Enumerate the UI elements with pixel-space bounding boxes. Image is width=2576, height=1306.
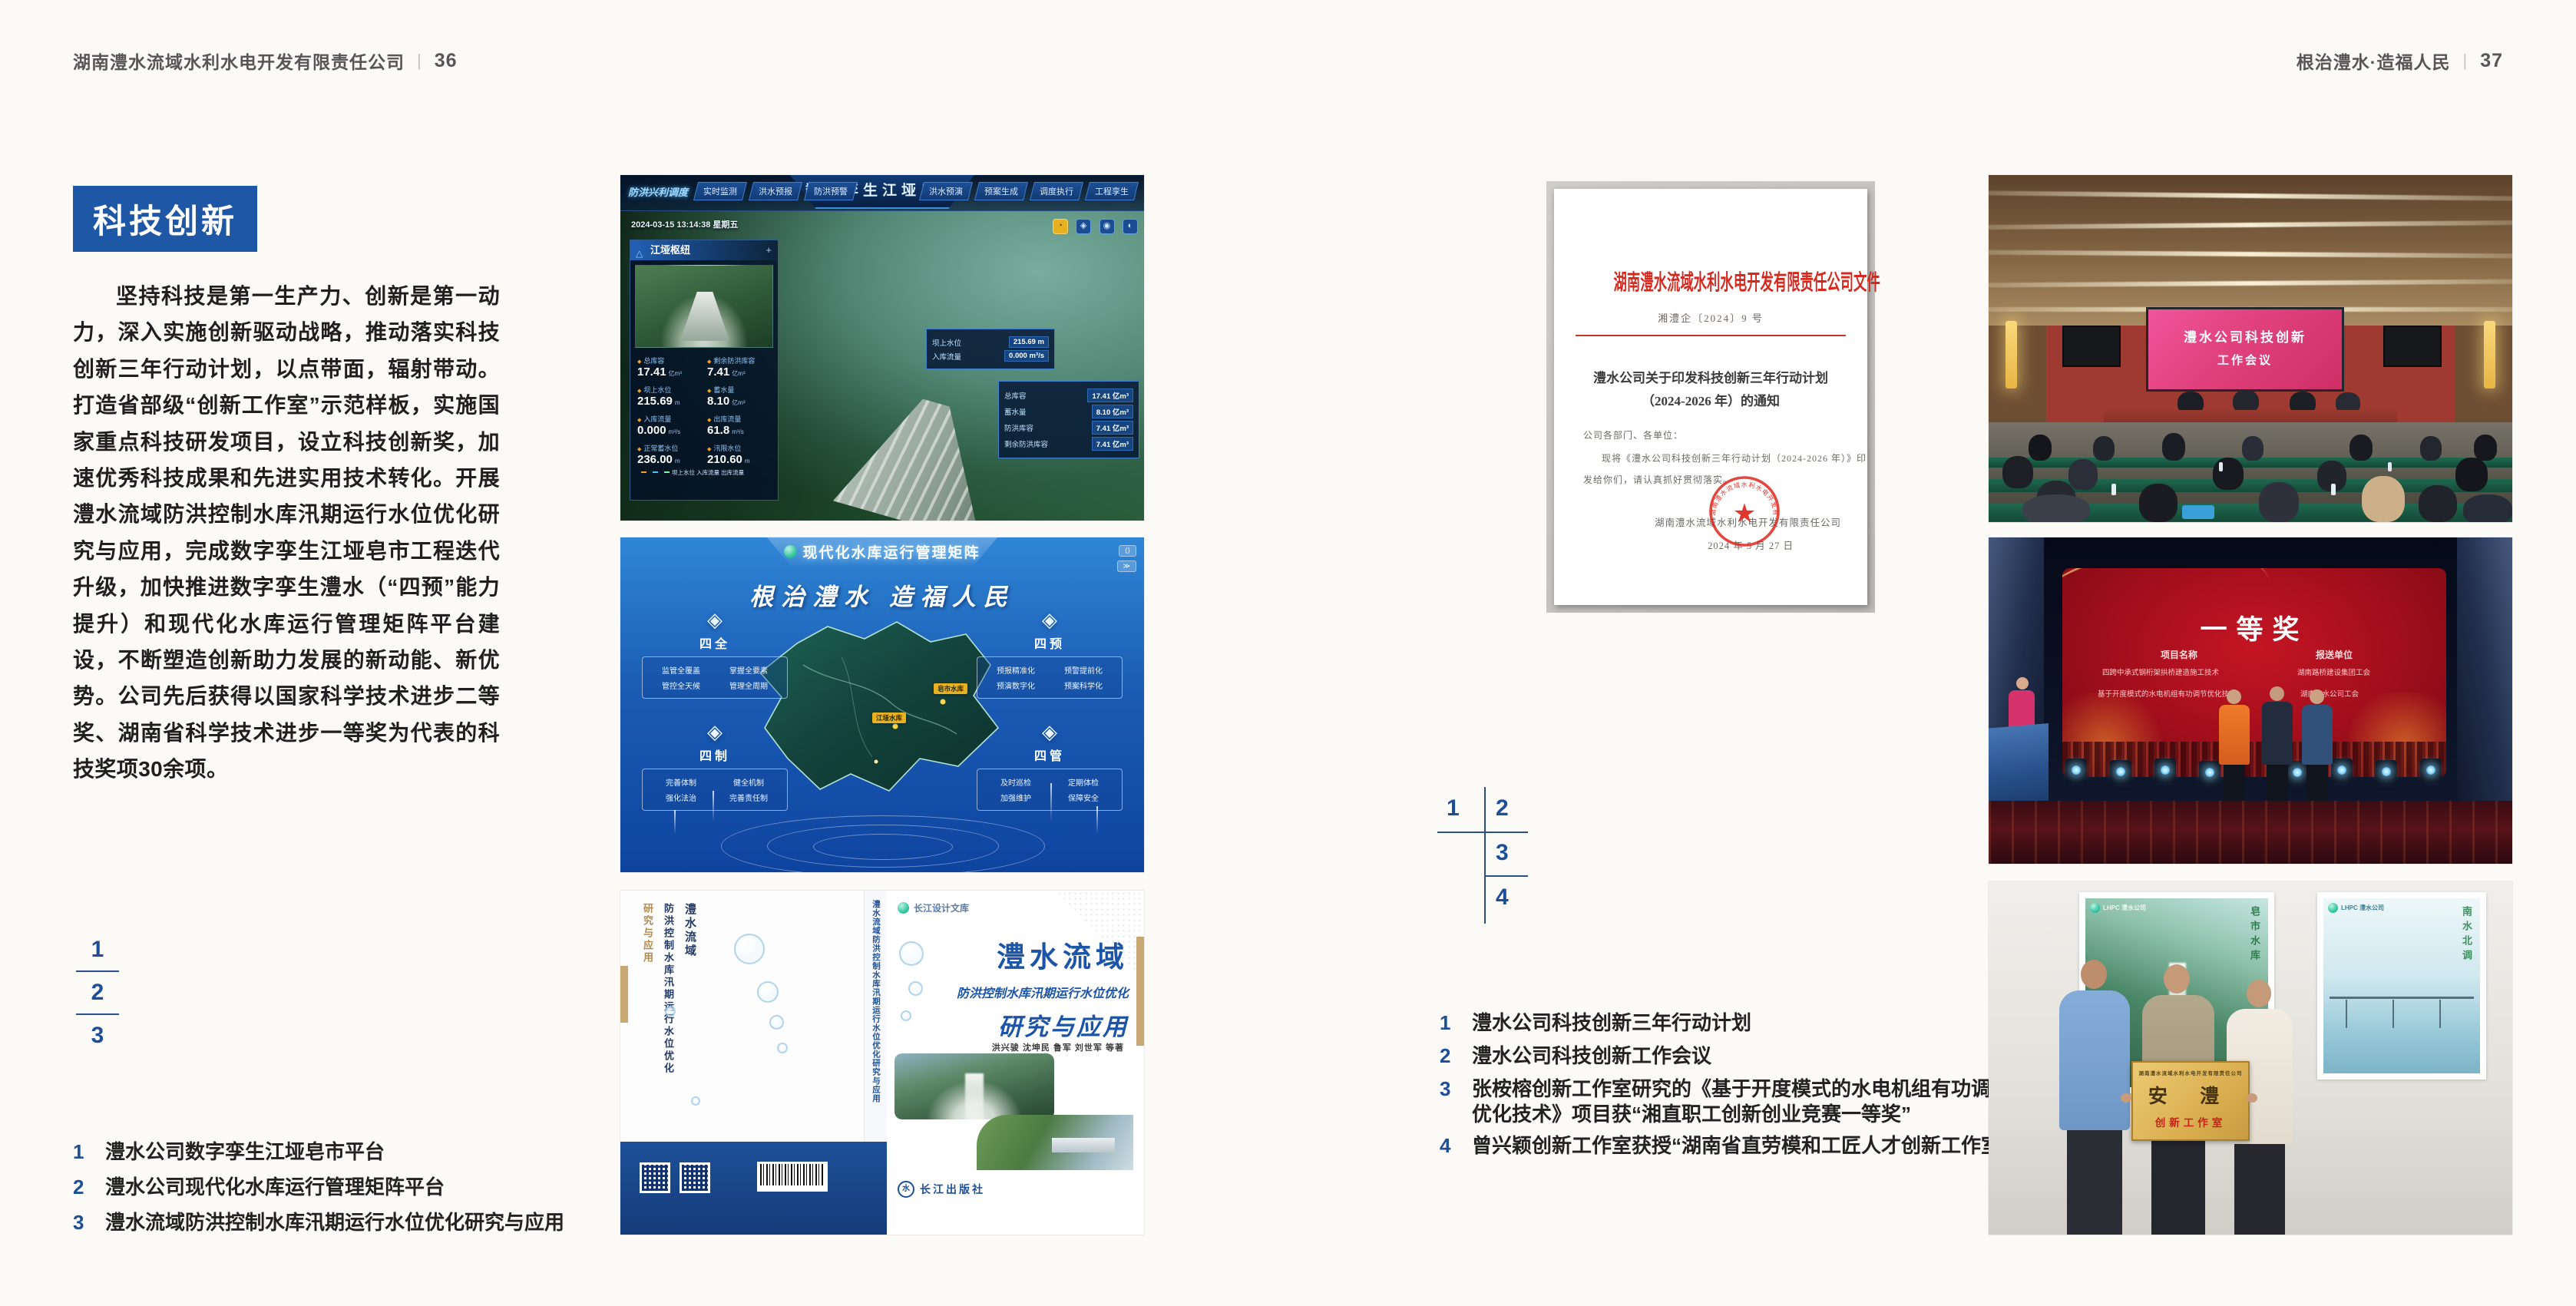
- book-authors: 洪兴骏 沈坤民 鲁军 刘世军 等著: [992, 1041, 1124, 1053]
- led-screen: 一等奖 项目名称 报送单位 四跨中承式钢桁架拱桥建造施工技术 湖南路桥建设集团工…: [2062, 568, 2446, 777]
- bubble-decoration: [777, 1043, 788, 1053]
- lhpc-logo-icon: [2090, 903, 2100, 913]
- tab-dispatch-execution: 调度执行: [1030, 182, 1083, 200]
- tab-realtime-monitor: 实时监测: [693, 182, 747, 200]
- audience-silhouette: [2213, 458, 2244, 490]
- figure-index-left: 1 2 3: [76, 937, 119, 1049]
- stat-flood-limit-level: 汛限水位210.60m: [707, 443, 771, 467]
- audience-silhouette: [2139, 484, 2178, 522]
- hub-info-panel: △ 江垭枢纽 + 总库容17.41亿m³ 剩余防洪库容7.41亿m³ 坝上水位2…: [630, 240, 779, 501]
- map-tooltip: 坝上水位215.69 m 入库流量0.000 m³/s: [926, 329, 1055, 369]
- expand-icon: +: [766, 240, 772, 260]
- audience-silhouette: [2419, 485, 2457, 522]
- caption-item: 4 曾兴颖创新工作室获授“湖南省直劳模和工匠人才创新工作室”: [1440, 1133, 2011, 1159]
- publisher-logo-icon: 水: [898, 1181, 914, 1198]
- quadrant-siyu: ◈ 四预 预报精准化预警提前化预演数字化预案科学化: [977, 608, 1123, 699]
- spine-title: 澧水流域防洪控制水库汛期运行水位优化研究与应用: [871, 900, 882, 1103]
- tv-screen-left: [2062, 326, 2121, 367]
- stage-light: [2110, 760, 2131, 785]
- nav-tabs-right: 洪水预演 预案生成 调度执行 工程孪生: [921, 182, 1136, 200]
- layers-icon: ◈: [1076, 219, 1091, 234]
- figure-index-number: 4: [1496, 884, 1509, 911]
- index-divider-line: [76, 1013, 119, 1015]
- document-red-header: 湖南澧水流域水利水电开发有限责任公司文件: [1614, 266, 1808, 296]
- page-number-left: 36: [435, 50, 458, 72]
- audience-silhouette: [2259, 482, 2299, 522]
- audience-silhouette: [2242, 436, 2264, 461]
- nav-group-label: 防洪兴利调度: [628, 184, 688, 199]
- plaque-main-title: 安 澧: [2133, 1081, 2248, 1109]
- bubble-decoration: [769, 1015, 784, 1030]
- figure-index-number: 1: [1447, 795, 1460, 822]
- caption-item: 1 澧水公司科技创新三年行动计划: [1440, 1010, 1751, 1036]
- stage-light: [2376, 760, 2397, 785]
- timestamp: 2024-03-15 13:14:38 星期五: [631, 218, 738, 230]
- plaque-subtitle: 创新工作室: [2133, 1114, 2248, 1129]
- back-vertical-title: 澧水流域 防洪控制水库汛期运行水位优化 研究与应用: [640, 903, 698, 1095]
- figure-book-cover: 澧水流域 防洪控制水库汛期运行水位优化 研究与应用 澧水流域防洪控制水库汛期运行…: [620, 891, 1144, 1235]
- tv-screen-right: [2383, 326, 2442, 367]
- index-horizontal-line: [1484, 875, 1528, 877]
- caption-number: 1: [73, 1139, 105, 1165]
- document-paper: 湖南澧水流域水利水电开发有限责任公司文件 湘澧企〔2024〕9 号 澧水公司关于…: [1554, 189, 1867, 605]
- slogan-text: 根治澧水·造福人民: [2297, 48, 2451, 74]
- panel-title: 江垭枢纽: [650, 244, 690, 256]
- dam-photo: [894, 1053, 1054, 1119]
- stage-light: [2065, 759, 2087, 783]
- back-title-line: 防洪控制水库汛期运行水位优化: [661, 903, 676, 1095]
- caption-text: 澧水公司科技创新工作会议: [1472, 1043, 1711, 1069]
- bridge-pier: [2392, 1000, 2394, 1027]
- caption-text: 张桉榕创新工作室研究的《基于开度模式的水电机组有功调节 优化技术》项目获“湘直职…: [1472, 1076, 2011, 1127]
- stat-normal-level: 正常蓄水位236.00m: [637, 443, 701, 467]
- dam-photo-secondary: [977, 1115, 1133, 1170]
- screen-title-line2: 工作会议: [2148, 352, 2342, 368]
- award-row-project: 基于开度模式的水电机组有功调节优化技术: [2098, 688, 2237, 699]
- quadrant-sizhi: ◈ 四制 完善体制健全机制强化法治完善责任制: [642, 720, 788, 811]
- caption-text: 澧水公司现代化水库运行管理矩阵平台: [105, 1175, 445, 1200]
- caption-text: 澧水公司数字孪生江垭皂市平台: [105, 1139, 385, 1165]
- caption-text: 曾兴颖创新工作室获授“湖南省直劳模和工匠人才创新工作室”: [1472, 1133, 2011, 1159]
- weather-icon: ◔: [1053, 219, 1068, 234]
- caption-number: 4: [1440, 1133, 1472, 1159]
- stat-total-capacity: 总库容17.41亿m³: [637, 355, 701, 379]
- qr-code: [682, 1165, 708, 1191]
- stage-light: [2154, 759, 2176, 783]
- audience-silhouette: [2162, 433, 2185, 461]
- water-bottle: [2331, 484, 2336, 495]
- publisher-mark: 水 长江出版社: [898, 1181, 985, 1198]
- tissue-box: [2182, 505, 2214, 519]
- page-number-right: 37: [2480, 50, 2503, 72]
- water-bottle: [2219, 462, 2223, 471]
- stage-light: [2420, 759, 2442, 783]
- poster-logo: LHPC 澧水公司: [2090, 903, 2146, 913]
- settings-icon: ◐: [1123, 219, 1138, 234]
- caption-line: 优化技术》项目获“湘直职工创新创业竞赛一等奖”: [1472, 1102, 2011, 1127]
- stat-inflow: 入库流量0.000m³/s: [637, 414, 701, 438]
- water-bottle: [2388, 462, 2392, 471]
- award-row-unit: 湖南路桥建设集团工会: [2297, 666, 2370, 677]
- photo-innovation-studio-plaque: LHPC 澧水公司 皂市水库 LHPC 澧水公司 南水北调: [1989, 881, 2512, 1235]
- caption-text: 澧水流域防洪控制水库汛期运行水位优化研究与应用: [105, 1210, 564, 1235]
- spine-blue-band: [864, 1142, 887, 1235]
- bubble-decoration: [665, 1006, 676, 1017]
- poster-logo: LHPC 澧水公司: [2328, 903, 2384, 913]
- company-name: 湖南澧水流域水利水电开发有限责任公司: [73, 48, 405, 74]
- award-row-project: 四跨中承式钢桁架拱桥建造施工技术: [2102, 666, 2219, 677]
- document-number: 湘澧企〔2024〕9 号: [1554, 310, 1867, 325]
- audience-silhouette: [2474, 435, 2497, 461]
- bubble-decoration: [908, 981, 923, 996]
- audience-silhouette-beige-coat: [2362, 476, 2405, 522]
- toolbar-icons: ◔ ◈ ◉ ◐: [1048, 218, 1138, 234]
- document-body-line: 现将《澧水公司科技创新三年行动计划（2024-2026 年）》印: [1602, 451, 1867, 465]
- wall-lamp: [2006, 321, 2017, 388]
- page-header-left: 湖南澧水流域水利水电开发有限责任公司 | 36: [73, 48, 458, 74]
- stage-light: [2331, 759, 2353, 783]
- stat-storage: 蓄水量8.10亿m³: [707, 385, 771, 408]
- tab-flood-rehearsal: 洪水预演: [919, 182, 973, 200]
- reflective-floor: [1989, 801, 2512, 864]
- back-title-line: 澧水流域: [682, 903, 698, 1095]
- book-title-sub: 防洪控制水库汛期运行水位优化: [957, 983, 1129, 1001]
- light-pillar: [1096, 806, 1098, 834]
- company-logo-icon: [784, 545, 797, 558]
- caption-item: 3 张桉榕创新工作室研究的《基于开度模式的水电机组有功调节 优化技术》项目获“湘…: [1440, 1076, 2011, 1127]
- screen-title-line1: 澧水公司科技创新: [2148, 326, 2342, 346]
- back-cover-blue-band: [620, 1142, 864, 1235]
- bubble-decoration: [757, 981, 779, 1003]
- figure-index-number: 2: [76, 980, 119, 1006]
- series-name: 长江设计文库: [914, 901, 969, 914]
- figure-index-number: 3: [1496, 840, 1509, 866]
- poster-calligraphy: 南水北调: [2459, 906, 2474, 964]
- back-title-line: 研究与应用: [640, 903, 655, 1095]
- index-vertical-line: [1484, 787, 1486, 924]
- red-rule: [1576, 335, 1846, 336]
- photo-award-ceremony: 一等奖 项目名称 报送单位 四跨中承式钢桁架拱桥建造施工技术 湖南路桥建设集团工…: [1989, 537, 2512, 864]
- brochure-spread: 湖南澧水流域水利水电开发有限责任公司 | 36 科技创新 坚持科技是第一生产力、…: [0, 0, 2576, 1306]
- quadrant-siguan: ◈ 四管 及时巡检定期体检加强维护保障安全: [977, 720, 1123, 811]
- series-logo: 长江设计文库: [898, 901, 969, 914]
- bridge-pier: [2346, 1000, 2347, 1027]
- stat-outflow: 出库流量61.8m³/s: [707, 414, 771, 438]
- page-header-right: 根治澧水·造福人民 | 37: [2297, 48, 2503, 74]
- index-divider-line: [76, 970, 119, 972]
- hand: [2247, 1093, 2257, 1103]
- water-bottle: [2111, 484, 2116, 495]
- caption-line: 张桉榕创新工作室研究的《基于开度模式的水电机组有功调节: [1472, 1076, 2011, 1102]
- quadrant-name: 四管: [977, 746, 1123, 764]
- bubble-decoration: [899, 941, 924, 966]
- switch-icon: ≫: [1117, 560, 1136, 572]
- plaque-company-line: 湖南澧水流域水利水电开发有限责任公司: [2133, 1069, 2248, 1076]
- book-front-cover: 长江设计文库 澧水流域 防洪控制水库汛期运行水位优化 研究与应用 洪兴骏 沈坤民…: [887, 891, 1144, 1235]
- audience-silhouette: [2002, 456, 2033, 488]
- quadrant-name: 四全: [642, 633, 788, 652]
- column-header-project: 项目名称: [2161, 648, 2197, 661]
- caption-item: 2 澧水公司科技创新工作会议: [1440, 1043, 1711, 1069]
- sail-icon: △: [636, 243, 643, 263]
- audience-silhouette: [2455, 458, 2488, 491]
- audience-silhouette: [2420, 436, 2442, 461]
- press-logo-icon: [898, 902, 909, 914]
- audience-silhouette: [2349, 435, 2373, 461]
- light-pillar: [674, 810, 676, 835]
- reservoir-marker: 江垭水库: [872, 713, 906, 723]
- document-salutation: 公司各部门、各单位：: [1583, 428, 1683, 441]
- stage-light: [2199, 761, 2221, 785]
- dam-thumbnail: [635, 265, 773, 348]
- quadrant-siquan: ◈ 四全 监管全覆盖掌握全要素管控全天候管理全周期: [642, 608, 788, 699]
- qr-code: [642, 1165, 668, 1191]
- dam-shape: [680, 292, 729, 341]
- cube-icon: ◈: [977, 720, 1123, 744]
- photo-innovation-meeting: 澧水公司科技创新 工作会议: [1989, 175, 2512, 522]
- poster-right: LHPC 澧水公司 南水北调: [2317, 892, 2486, 1080]
- barcode: [757, 1162, 828, 1192]
- header-divider: |: [417, 51, 422, 71]
- wall-lamp: [2484, 321, 2495, 388]
- audience-silhouette: [2029, 435, 2052, 461]
- hand: [2121, 1093, 2131, 1103]
- front-title-block: 澧水流域 防洪控制水库汛期运行水位优化 研究与应用: [957, 934, 1129, 1042]
- caption-item: 1 澧水公司数字孪生江垭皂市平台: [73, 1139, 385, 1165]
- caption-number: 2: [73, 1175, 105, 1200]
- caption-text: 澧水公司科技创新三年行动计划: [1472, 1010, 1751, 1036]
- svg-text:★: ★: [1733, 499, 1756, 528]
- stat-dam-water-level: 坝上水位215.69m: [637, 385, 701, 408]
- figure-digital-twin-platform: 数字孪生江垭皂市 防洪兴利调度 实时监测 洪水预报 防洪预警 洪水预演 预案生成…: [620, 175, 1144, 521]
- quadrant-name: 四预: [977, 633, 1123, 652]
- caption-number: 3: [73, 1210, 105, 1235]
- tan-accent-bar: [1136, 937, 1144, 1046]
- figure-reservoir-matrix-platform: 现代化水库运行管理矩阵 ⟨⟩ ≫ 根治澧水 造福人民 皂市水库 江垭水库 ◈ 四…: [620, 537, 1144, 872]
- poster-calligraphy: 皂市水库: [2247, 906, 2262, 964]
- mini-chart-legend: 坝上水位 入库流量 出库流量: [637, 468, 771, 477]
- publisher-name: 长江出版社: [920, 1182, 985, 1197]
- figure-index-number: 1: [76, 937, 119, 963]
- innovation-studio-plaque: 湖南澧水流域水利水电开发有限责任公司 安 澧 创新工作室: [2131, 1061, 2250, 1141]
- platform-header: 现代化水库运行管理矩阵: [767, 537, 997, 565]
- figure-index-number: 2: [1496, 795, 1509, 822]
- nav-tabs-left: 防洪兴利调度 实时监测 洪水预报 防洪预警: [628, 182, 855, 200]
- award-title: 一等奖: [2062, 608, 2446, 647]
- host-podium: [1989, 723, 2049, 808]
- cube-icon: ◈: [977, 608, 1123, 632]
- quadrant-name: 四制: [642, 746, 788, 764]
- meeting-screen: 澧水公司科技创新 工作会议: [2146, 307, 2344, 392]
- stats-grid: 总库容17.41亿m³ 剩余防洪库容7.41亿m³ 坝上水位215.69m 蓄水…: [630, 352, 778, 467]
- caption-item: 3 澧水流域防洪控制水库汛期运行水位优化研究与应用: [73, 1210, 564, 1235]
- audience-silhouette: [2068, 459, 2098, 490]
- cube-icon: ◈: [642, 608, 788, 632]
- caption-number: 1: [1440, 1010, 1472, 1036]
- caption-number: 2: [1440, 1043, 1472, 1069]
- reservoir-marker: 皂市水库: [934, 683, 967, 694]
- body-paragraph: 坚持科技是第一生产力、创新是第一动力，深入实施创新驱动战略，推动落实科技创新三年…: [73, 278, 500, 788]
- stat-remaining-flood-capacity: 剩余防洪库容7.41亿m³: [707, 355, 771, 379]
- audience-silhouette: [2093, 436, 2115, 461]
- company-seal: 湖南澧水流域水利水电开发有限责任公司 ★: [1708, 474, 1781, 548]
- document-title-line1: 澧水公司关于印发科技创新三年行动计划: [1554, 367, 1867, 386]
- header-divider: |: [2462, 51, 2468, 71]
- bridge-deck: [2330, 997, 2474, 999]
- ring-decoration: [813, 834, 953, 860]
- light-pillar: [1050, 783, 1052, 822]
- bridge-pier: [2439, 1000, 2441, 1027]
- caption-item: 2 澧水公司现代化水库运行管理矩阵平台: [73, 1175, 445, 1200]
- light-pillar: [713, 791, 714, 822]
- tab-plan-generation: 预案生成: [974, 182, 1028, 200]
- map-tooltip: 总库容17.41 亿m³ 蓄水量8.10 亿m³ 防洪库容7.41 亿m³ 剩余…: [998, 381, 1139, 458]
- column-header-unit: 报送单位: [2316, 648, 2353, 661]
- panel-header: △ 江垭枢纽 +: [630, 240, 778, 260]
- tab-flood-forecast: 洪水预报: [749, 182, 802, 200]
- cube-icon: ◈: [642, 720, 788, 744]
- tab-project-twin: 工程孪生: [1085, 182, 1139, 200]
- tan-accent-bar: [620, 966, 628, 1023]
- section-title: 科技创新: [73, 186, 257, 252]
- document-title-line2: （2024-2026 年）的通知: [1554, 390, 1867, 409]
- audience-silhouette-foreground: [2463, 494, 2512, 522]
- book-title-tail: 研究与应用: [957, 1007, 1129, 1042]
- figure-official-document: 湖南澧水流域水利水电开发有限责任公司文件 湘澧企〔2024〕9 号 澧水公司关于…: [1546, 181, 1875, 613]
- fullscreen-icon: ⟨⟩: [1119, 545, 1136, 557]
- caption-number: 3: [1440, 1076, 1472, 1127]
- bubble-decoration: [901, 1010, 911, 1021]
- locate-icon: ◉: [1100, 219, 1115, 234]
- tab-flood-warning: 防洪预警: [804, 182, 858, 200]
- platform-title: 现代化水库运行管理矩阵: [802, 541, 980, 562]
- index-horizontal-line: [1437, 832, 1528, 833]
- figure-index-number: 3: [76, 1023, 119, 1049]
- bubble-decoration: [734, 934, 765, 964]
- book-title-main: 澧水流域: [957, 934, 1129, 975]
- bubble-decoration: [691, 1096, 700, 1106]
- slogan-calligraphy: 根治澧水 造福人民: [620, 577, 1144, 612]
- audience-silhouette-foreground: [2022, 494, 2090, 522]
- lhpc-logo-icon: [2328, 903, 2338, 913]
